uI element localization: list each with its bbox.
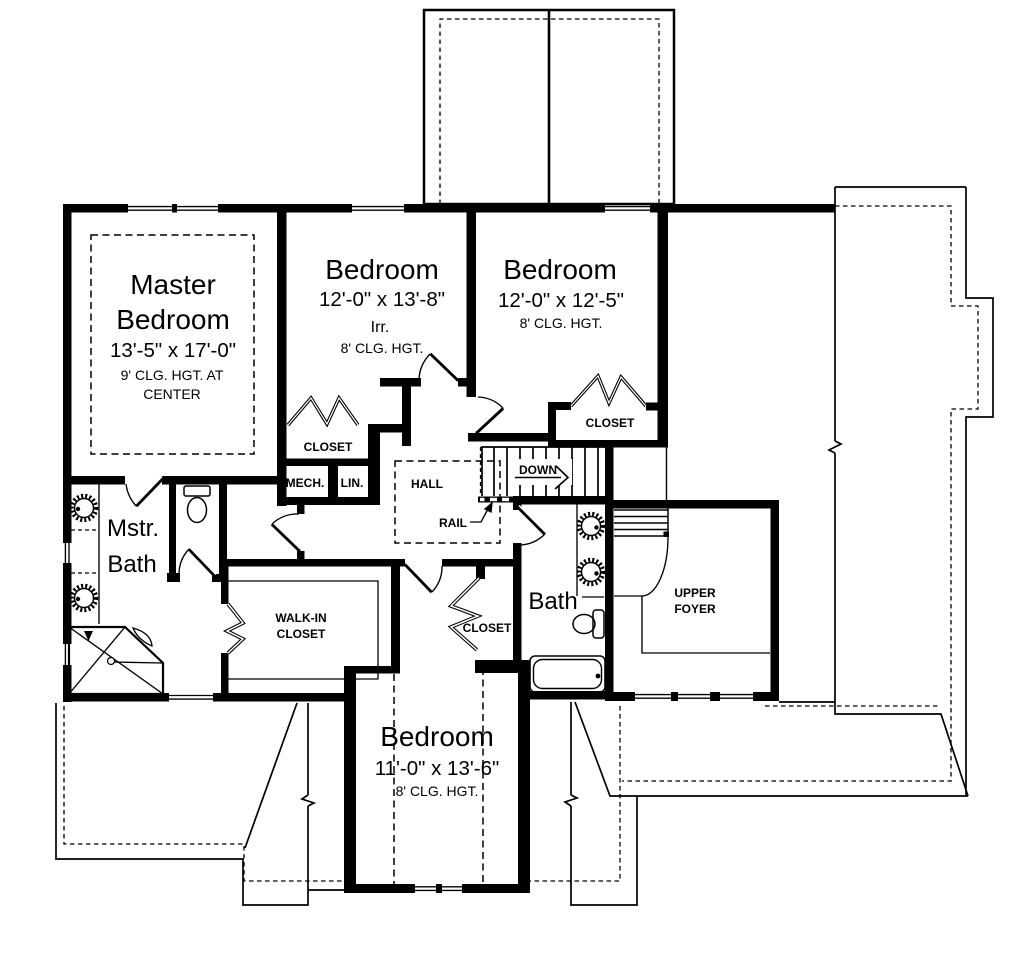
svg-text:FOYER: FOYER (674, 602, 716, 616)
svg-text:LIN.: LIN. (341, 476, 364, 490)
svg-text:Bath: Bath (107, 551, 156, 578)
svg-text:MECH.: MECH. (286, 476, 325, 490)
svg-text:CENTER: CENTER (143, 386, 201, 402)
svg-text:UPPER: UPPER (674, 586, 716, 600)
svg-text:Bedroom: Bedroom (503, 254, 617, 285)
svg-text:Mstr.: Mstr. (107, 515, 159, 542)
svg-text:12'-0" x 13'-8": 12'-0" x 13'-8" (319, 288, 445, 311)
svg-text:12'-0" x 12'-5": 12'-0" x 12'-5" (498, 289, 624, 312)
svg-text:DOWN: DOWN (519, 463, 557, 477)
svg-text:Master: Master (130, 269, 216, 300)
svg-text:11'-0" x 13'-6": 11'-0" x 13'-6" (375, 757, 500, 780)
svg-text:8' CLG. HGT.: 8' CLG. HGT. (396, 783, 479, 799)
svg-text:CLOSET: CLOSET (463, 621, 512, 635)
svg-text:RAIL: RAIL (439, 516, 467, 530)
svg-text:8' CLG. HGT.: 8' CLG. HGT. (520, 315, 603, 331)
svg-text:HALL: HALL (411, 477, 443, 491)
svg-text:8' CLG. HGT.: 8' CLG. HGT. (341, 340, 424, 356)
svg-text:Bedroom: Bedroom (116, 304, 230, 335)
svg-text:Bedroom: Bedroom (325, 254, 439, 285)
svg-text:CLOSET: CLOSET (277, 627, 326, 641)
svg-text:Irr.: Irr. (371, 319, 390, 336)
svg-text:Bath: Bath (528, 588, 577, 615)
svg-text:9' CLG. HGT. AT: 9' CLG. HGT. AT (121, 367, 224, 383)
svg-text:CLOSET: CLOSET (304, 440, 353, 454)
svg-text:Bedroom: Bedroom (380, 721, 494, 752)
svg-text:WALK-IN: WALK-IN (275, 611, 326, 625)
svg-text:CLOSET: CLOSET (586, 416, 635, 430)
svg-text:13'-5" x 17'-0": 13'-5" x 17'-0" (110, 339, 236, 362)
